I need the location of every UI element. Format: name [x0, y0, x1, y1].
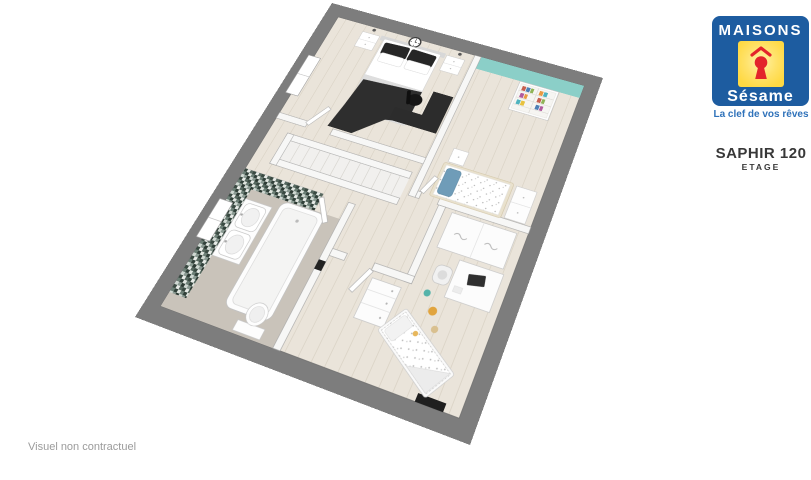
brand-name-top: MAISONS	[718, 22, 802, 39]
brand-logo: MAISONS Sésame	[712, 16, 809, 106]
floor-plan	[135, 3, 603, 445]
brand-tagline: La clef de vos rêves	[706, 109, 811, 120]
brand-name-script: Sésame	[727, 88, 794, 106]
model-name: SAPHIR 120	[690, 145, 811, 162]
brand-yellow-square	[738, 41, 784, 87]
level-label: ETAGE	[690, 162, 811, 172]
floor-plan-scene	[135, 3, 603, 445]
disclaimer-text: Visuel non contractuel	[28, 441, 136, 453]
laptop	[467, 274, 486, 287]
floorplan-visual: MAISONS Sésame La clef de vos rêves SAPH…	[0, 0, 811, 480]
keyhole-icon	[738, 41, 784, 87]
